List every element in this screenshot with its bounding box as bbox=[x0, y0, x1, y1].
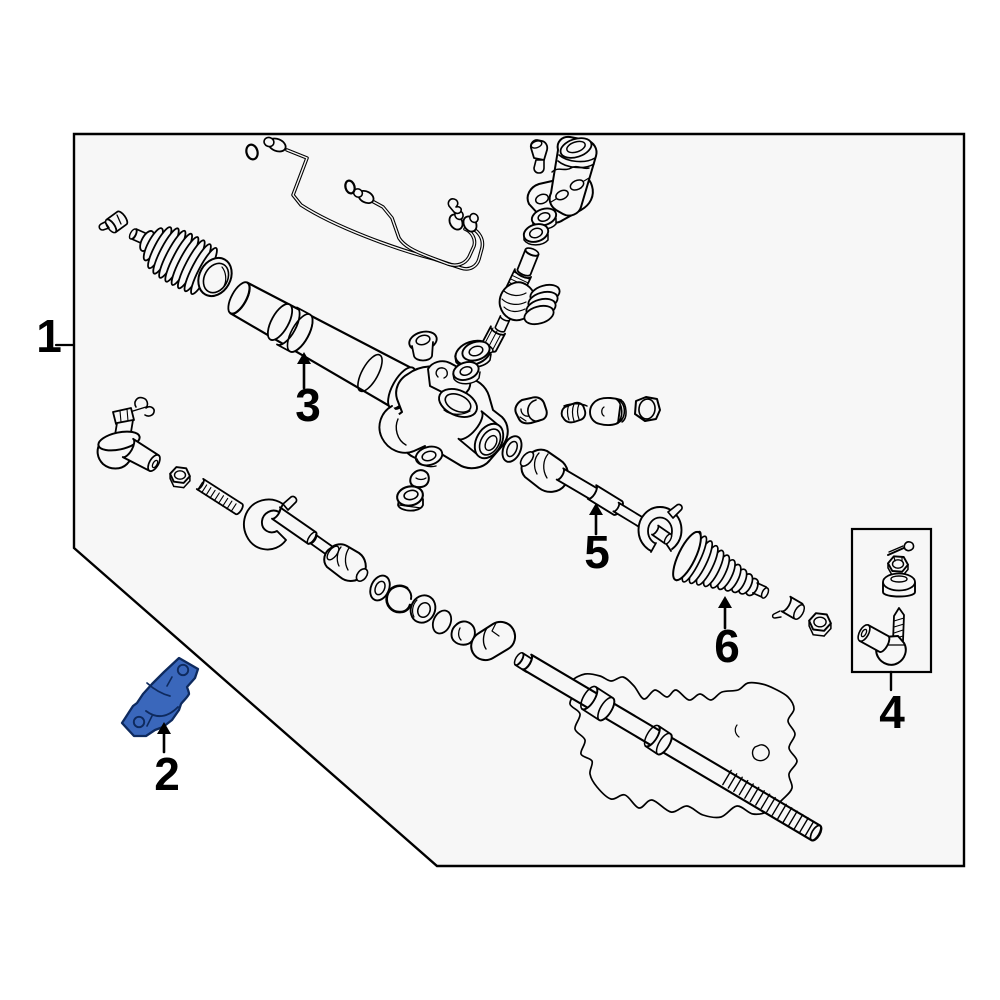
svg-text:3: 3 bbox=[295, 379, 321, 431]
svg-text:6: 6 bbox=[714, 620, 740, 672]
svg-text:5: 5 bbox=[584, 526, 610, 578]
svg-text:2: 2 bbox=[154, 748, 180, 800]
svg-text:4: 4 bbox=[879, 686, 905, 738]
svg-text:1: 1 bbox=[36, 310, 62, 362]
